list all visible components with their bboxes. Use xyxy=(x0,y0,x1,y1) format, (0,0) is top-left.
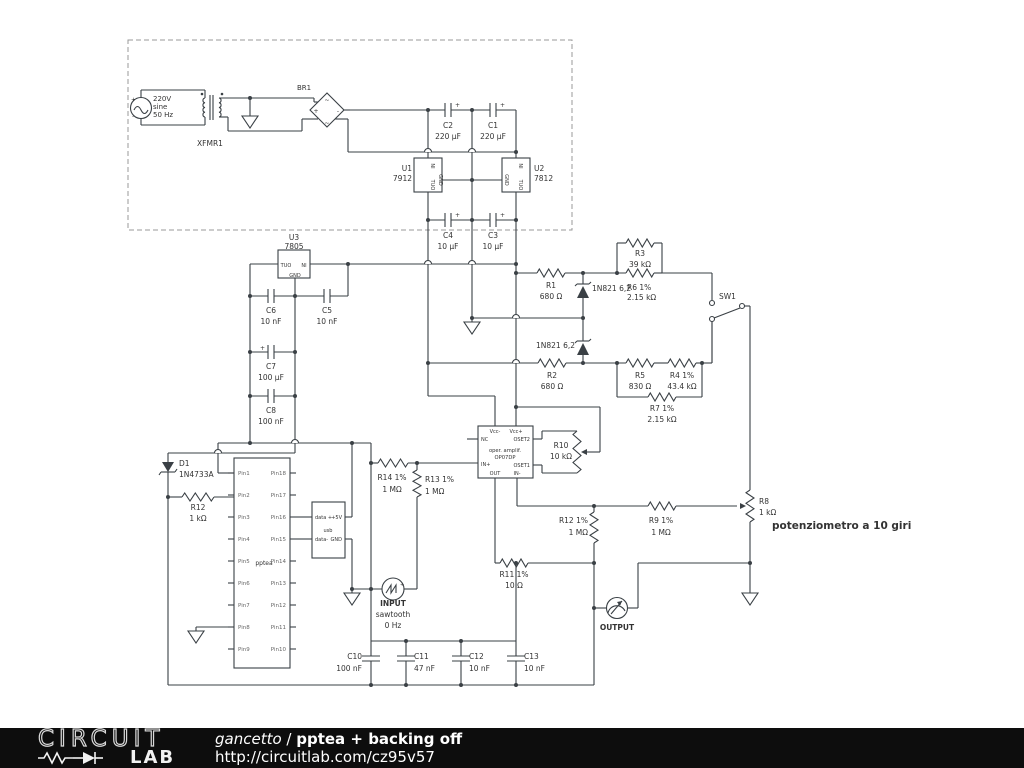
label-r7: R7 1% xyxy=(650,404,674,413)
label-vccm: Vcc- xyxy=(490,429,501,435)
resistor-diode-icon xyxy=(38,750,130,766)
junction-dot xyxy=(293,294,297,298)
junction-dot xyxy=(221,93,224,96)
label-oa2: OP07DP xyxy=(495,455,516,461)
diode-or-arrow xyxy=(581,449,587,455)
label-r8: R8 xyxy=(759,497,769,506)
schematic-url[interactable]: http://circuitlab.com/cz95v57 xyxy=(215,748,462,766)
resistor-zigzag xyxy=(668,359,696,367)
label-r9: R9 1% xyxy=(649,516,673,525)
label-xfmr1: XFMR1 xyxy=(197,139,223,148)
sine-wave-icon xyxy=(134,107,148,114)
junction-dot xyxy=(700,361,704,365)
junction-dot xyxy=(470,316,474,320)
switch-terminal xyxy=(710,301,715,306)
label-r6v: 2.15 kΩ xyxy=(627,293,656,302)
resistor-zigzag xyxy=(537,269,565,277)
switch-terminal xyxy=(710,317,715,322)
label-r12m: R12 1% xyxy=(559,516,588,525)
label-pin6: Pin6 xyxy=(238,581,250,587)
label-c11: C11 xyxy=(414,652,429,661)
label-r5v: 830 Ω xyxy=(629,382,652,391)
label-br_s1: ~ xyxy=(324,97,329,104)
resistor-zigzag xyxy=(573,431,581,473)
wire xyxy=(175,469,177,472)
ground-symbol xyxy=(742,593,758,605)
label-src_plus: + xyxy=(131,97,136,103)
label-c2: C2 xyxy=(443,121,453,130)
resistor-zigzag xyxy=(746,490,754,522)
junction-dot xyxy=(350,587,354,591)
label-c13: C13 xyxy=(524,652,539,661)
label-pin15: Pin15 xyxy=(271,537,287,543)
junction-dot xyxy=(459,639,463,643)
junction-dot xyxy=(248,441,252,445)
resistor-zigzag xyxy=(378,459,408,467)
wire-crossover-hop xyxy=(292,440,299,443)
label-c7p: + xyxy=(260,345,265,352)
junction-dot xyxy=(369,587,373,591)
ground-symbol xyxy=(344,593,360,605)
label-usb: usb xyxy=(324,528,333,534)
label-u3out: TUO xyxy=(280,263,292,269)
wire-crossover-hop xyxy=(425,261,432,265)
wire xyxy=(159,472,161,475)
label-c5: C5 xyxy=(322,306,332,315)
resistor-zigzag xyxy=(182,493,214,501)
label-br_plus: + xyxy=(313,108,318,115)
label-u2v: 7812 xyxy=(534,174,553,183)
label-inm: IN- xyxy=(513,471,520,477)
label-br_s2: ~ xyxy=(324,120,329,127)
diode-or-arrow xyxy=(740,503,746,509)
label-r10: R10 xyxy=(554,441,569,450)
label-c2p: + xyxy=(455,102,460,109)
label-c1v: 220 µF xyxy=(480,132,506,141)
label-c11v: 47 nF xyxy=(414,664,435,673)
wire-crossover-hop xyxy=(215,450,222,454)
label-u2out: TUO xyxy=(517,179,523,191)
label-v220b: sine xyxy=(153,103,167,111)
label-pin3: Pin3 xyxy=(238,515,250,521)
wire xyxy=(575,284,577,286)
title-separator: / xyxy=(282,730,297,748)
circuitlab-screenshot: 220Vsine50 Hz+-XFMR1BR1+-~~C2220 µF+C122… xyxy=(0,0,1024,768)
ground-symbol xyxy=(464,322,480,334)
label-pot: potenziometro a 10 giri xyxy=(772,520,911,532)
label-v220c: 50 Hz xyxy=(153,111,173,119)
junction-dot xyxy=(615,361,619,365)
wire xyxy=(589,339,591,341)
junction-dot xyxy=(470,218,474,222)
ground-symbol xyxy=(188,631,204,643)
junction-dot xyxy=(470,178,474,182)
label-r8v: 1 kΩ xyxy=(759,508,776,517)
label-output: OUTPUT xyxy=(600,623,635,632)
label-r12mv: 1 MΩ xyxy=(569,528,589,537)
transformer-secondary-coil xyxy=(219,98,221,117)
wire-crossover-hop xyxy=(469,149,476,153)
junction-dot xyxy=(592,561,596,565)
junction-dot xyxy=(404,683,408,687)
junction-dot xyxy=(201,93,204,96)
resistor-zigzag xyxy=(648,502,676,510)
junction-dot xyxy=(248,350,252,354)
wire-crossover-hop xyxy=(513,360,520,364)
label-c5v: 10 nF xyxy=(317,317,338,326)
wire xyxy=(714,308,740,318)
junction-dot xyxy=(514,218,518,222)
junction-dot xyxy=(459,683,463,687)
label-d1: D1 xyxy=(179,459,190,468)
label-pin17: Pin17 xyxy=(271,493,287,499)
label-pin8: Pin8 xyxy=(238,625,250,631)
switch-terminal xyxy=(740,304,745,309)
label-d1v: 1N4733A xyxy=(179,470,214,479)
label-c8v: 100 nF xyxy=(258,417,284,426)
label-r14v: 1 MΩ xyxy=(382,485,402,494)
junction-dot xyxy=(592,606,596,610)
label-r3v: 39 kΩ xyxy=(629,260,651,269)
label-u3v: 7805 xyxy=(284,242,303,251)
junction-dot xyxy=(581,361,585,365)
label-input2: sawtooth xyxy=(376,610,411,619)
label-pin1: Pin1 xyxy=(238,471,250,477)
label-sw1: SW1 xyxy=(719,292,736,301)
label-r4: R4 1% xyxy=(670,371,694,380)
junction-dot xyxy=(415,461,419,465)
junction-dot xyxy=(514,405,518,409)
label-r1v: 680 Ω xyxy=(540,292,563,301)
label-u1in: NI xyxy=(429,163,435,168)
schematic-title: gancetto / pptea + backing off xyxy=(215,730,462,748)
label-c8: C8 xyxy=(266,406,276,415)
label-input_plus: + xyxy=(400,582,404,588)
label-r3: R3 xyxy=(635,249,645,258)
label-r12k: R12 xyxy=(191,503,206,512)
junction-dot xyxy=(248,96,252,100)
label-usb_dm: data- xyxy=(315,537,328,543)
label-c3v: 10 µF xyxy=(482,242,503,251)
resistor-zigzag xyxy=(590,512,598,543)
junction-dot xyxy=(350,441,354,445)
circuitlab-logo: CIRCUIT LAB xyxy=(38,729,198,767)
junction-dot xyxy=(248,294,252,298)
label-r4v: 43.4 kΩ xyxy=(667,382,696,391)
resistor-zigzag xyxy=(626,359,654,367)
resistor-zigzag xyxy=(626,269,654,277)
junction-dot xyxy=(166,495,170,499)
label-u3: U3 xyxy=(289,233,299,242)
label-oset1: OSET1 xyxy=(513,463,530,469)
label-c7: C7 xyxy=(266,362,276,371)
label-c7v: 100 µF xyxy=(258,373,284,382)
source-or-meter-circle xyxy=(607,598,628,619)
label-outp: OUT xyxy=(490,471,502,477)
label-c4p: + xyxy=(455,212,460,219)
label-v220a: 220V xyxy=(153,95,171,103)
junction-dot xyxy=(470,108,474,112)
label-u1gnd: GND xyxy=(437,174,443,186)
label-c6v: 10 nF xyxy=(261,317,282,326)
label-c1: C1 xyxy=(488,121,498,130)
label-pin2: Pin2 xyxy=(238,493,250,499)
label-c10: C10 xyxy=(347,652,362,661)
diode-or-arrow xyxy=(577,286,589,298)
label-pin10: Pin10 xyxy=(271,647,287,653)
label-vccp: Vcc+ xyxy=(509,429,522,435)
label-c1p: + xyxy=(500,102,505,109)
sawtooth-wave-icon xyxy=(386,585,396,593)
label-pin18: Pin18 xyxy=(271,471,287,477)
label-r1: R1 xyxy=(546,281,556,290)
resistor-zigzag xyxy=(648,393,676,401)
junction-dot xyxy=(426,108,430,112)
resistor-zigzag xyxy=(413,470,421,497)
junction-dot xyxy=(581,316,585,320)
logo-text-circuit: CIRCUIT xyxy=(38,729,198,749)
junction-dot xyxy=(293,394,297,398)
label-z1: 1N821 6,2 xyxy=(592,284,631,293)
label-br1: BR1 xyxy=(297,84,311,92)
label-u2: U2 xyxy=(534,164,544,173)
junction-dot xyxy=(426,361,430,365)
wire-crossover-hop xyxy=(513,315,520,319)
label-u1out: TUO xyxy=(429,179,435,191)
junction-dot xyxy=(748,561,752,565)
label-r2: R2 xyxy=(547,371,557,380)
junction-dot xyxy=(404,639,408,643)
label-inp: IN+ xyxy=(481,462,490,468)
junction-dot xyxy=(248,394,252,398)
label-c10v: 100 nF xyxy=(336,664,362,673)
label-pin14: Pin14 xyxy=(271,559,287,565)
label-u1: U1 xyxy=(402,164,412,173)
diode-or-arrow xyxy=(162,462,174,472)
label-br_minus: - xyxy=(337,108,339,115)
junction-dot xyxy=(514,150,518,154)
junction-dot xyxy=(514,271,518,275)
label-c4v: 10 µF xyxy=(437,242,458,251)
label-usb_dp: data + xyxy=(315,515,332,521)
label-r7v: 2.15 kΩ xyxy=(647,415,676,424)
junction-dot xyxy=(592,504,596,508)
label-pin9: Pin9 xyxy=(238,647,250,653)
label-usb_gnd: GND xyxy=(331,537,343,543)
wire xyxy=(589,282,591,284)
label-pin4: Pin4 xyxy=(238,537,250,543)
label-input3: 0 Hz xyxy=(385,621,402,630)
wire xyxy=(575,341,577,343)
label-c12: C12 xyxy=(469,652,484,661)
label-r12kv: 1 kΩ xyxy=(189,514,206,523)
title-text: pptea + backing off xyxy=(296,730,462,748)
wire-crossover-hop xyxy=(469,261,476,265)
label-oset2: OSET2 xyxy=(513,437,530,443)
label-r6: R6 1% xyxy=(627,283,651,292)
junction-dot xyxy=(514,683,518,687)
resistor-zigzag xyxy=(538,359,566,367)
label-r11: R11 1% xyxy=(499,570,528,579)
label-u3gnd: GND xyxy=(289,273,301,279)
author-name: gancetto xyxy=(215,730,282,748)
junction-dot xyxy=(369,461,373,465)
label-pin11: Pin11 xyxy=(271,625,286,631)
junction-dot xyxy=(615,271,619,275)
label-c13v: 10 nF xyxy=(524,664,545,673)
junction-dot xyxy=(514,561,518,565)
label-input1: INPUT xyxy=(380,599,407,608)
label-u1v: 7912 xyxy=(393,174,412,183)
wire-crossover-hop xyxy=(425,149,432,153)
label-r14: R14 1% xyxy=(377,473,406,482)
label-nc: NC xyxy=(481,437,489,443)
label-u2in: NI xyxy=(517,163,523,168)
label-c4: C4 xyxy=(443,231,453,240)
junction-dot xyxy=(346,262,350,266)
label-r5: R5 xyxy=(635,371,645,380)
label-pin5: Pin5 xyxy=(238,559,250,565)
resistor-zigzag xyxy=(626,239,654,247)
label-c2v: 220 µF xyxy=(435,132,461,141)
label-r13: R13 1% xyxy=(425,475,454,484)
label-r11v: 10 Ω xyxy=(505,581,523,590)
junction-dot xyxy=(514,262,518,266)
label-src_minus: - xyxy=(132,114,134,120)
logo-text-lab: LAB xyxy=(130,749,175,767)
label-c3: C3 xyxy=(488,231,498,240)
label-z2: 1N821 6,2 xyxy=(536,341,575,350)
circuit-schematic: 220Vsine50 Hz+-XFMR1BR1+-~~C2220 µF+C122… xyxy=(0,0,1024,728)
label-c6: C6 xyxy=(266,306,276,315)
label-pin13: Pin13 xyxy=(271,581,287,587)
label-pin12: Pin12 xyxy=(271,603,286,609)
junction-dot xyxy=(426,218,430,222)
diode-or-arrow xyxy=(577,343,589,355)
label-c12v: 10 nF xyxy=(469,664,490,673)
label-r13v: 1 MΩ xyxy=(425,487,445,496)
footer-bar: CIRCUIT LAB gancetto / pptea + backing o… xyxy=(0,728,1024,768)
label-pin7: Pin7 xyxy=(238,603,250,609)
label-oa1: oper. amplif. xyxy=(489,448,521,454)
transformer-primary-coil xyxy=(203,98,205,117)
junction-dot xyxy=(581,271,585,275)
label-u2gnd: GND xyxy=(503,174,509,186)
label-usb_5v: +5V xyxy=(331,515,342,521)
label-r9v: 1 MΩ xyxy=(651,528,671,537)
ground-symbol xyxy=(242,116,258,128)
label-r2v: 680 Ω xyxy=(541,382,564,391)
label-c3p: + xyxy=(500,212,505,219)
label-pin16: Pin16 xyxy=(271,515,287,521)
junction-dot xyxy=(293,350,297,354)
label-u3in: NI xyxy=(301,263,306,269)
junction-dot xyxy=(369,683,373,687)
label-r10v: 10 kΩ xyxy=(550,452,572,461)
